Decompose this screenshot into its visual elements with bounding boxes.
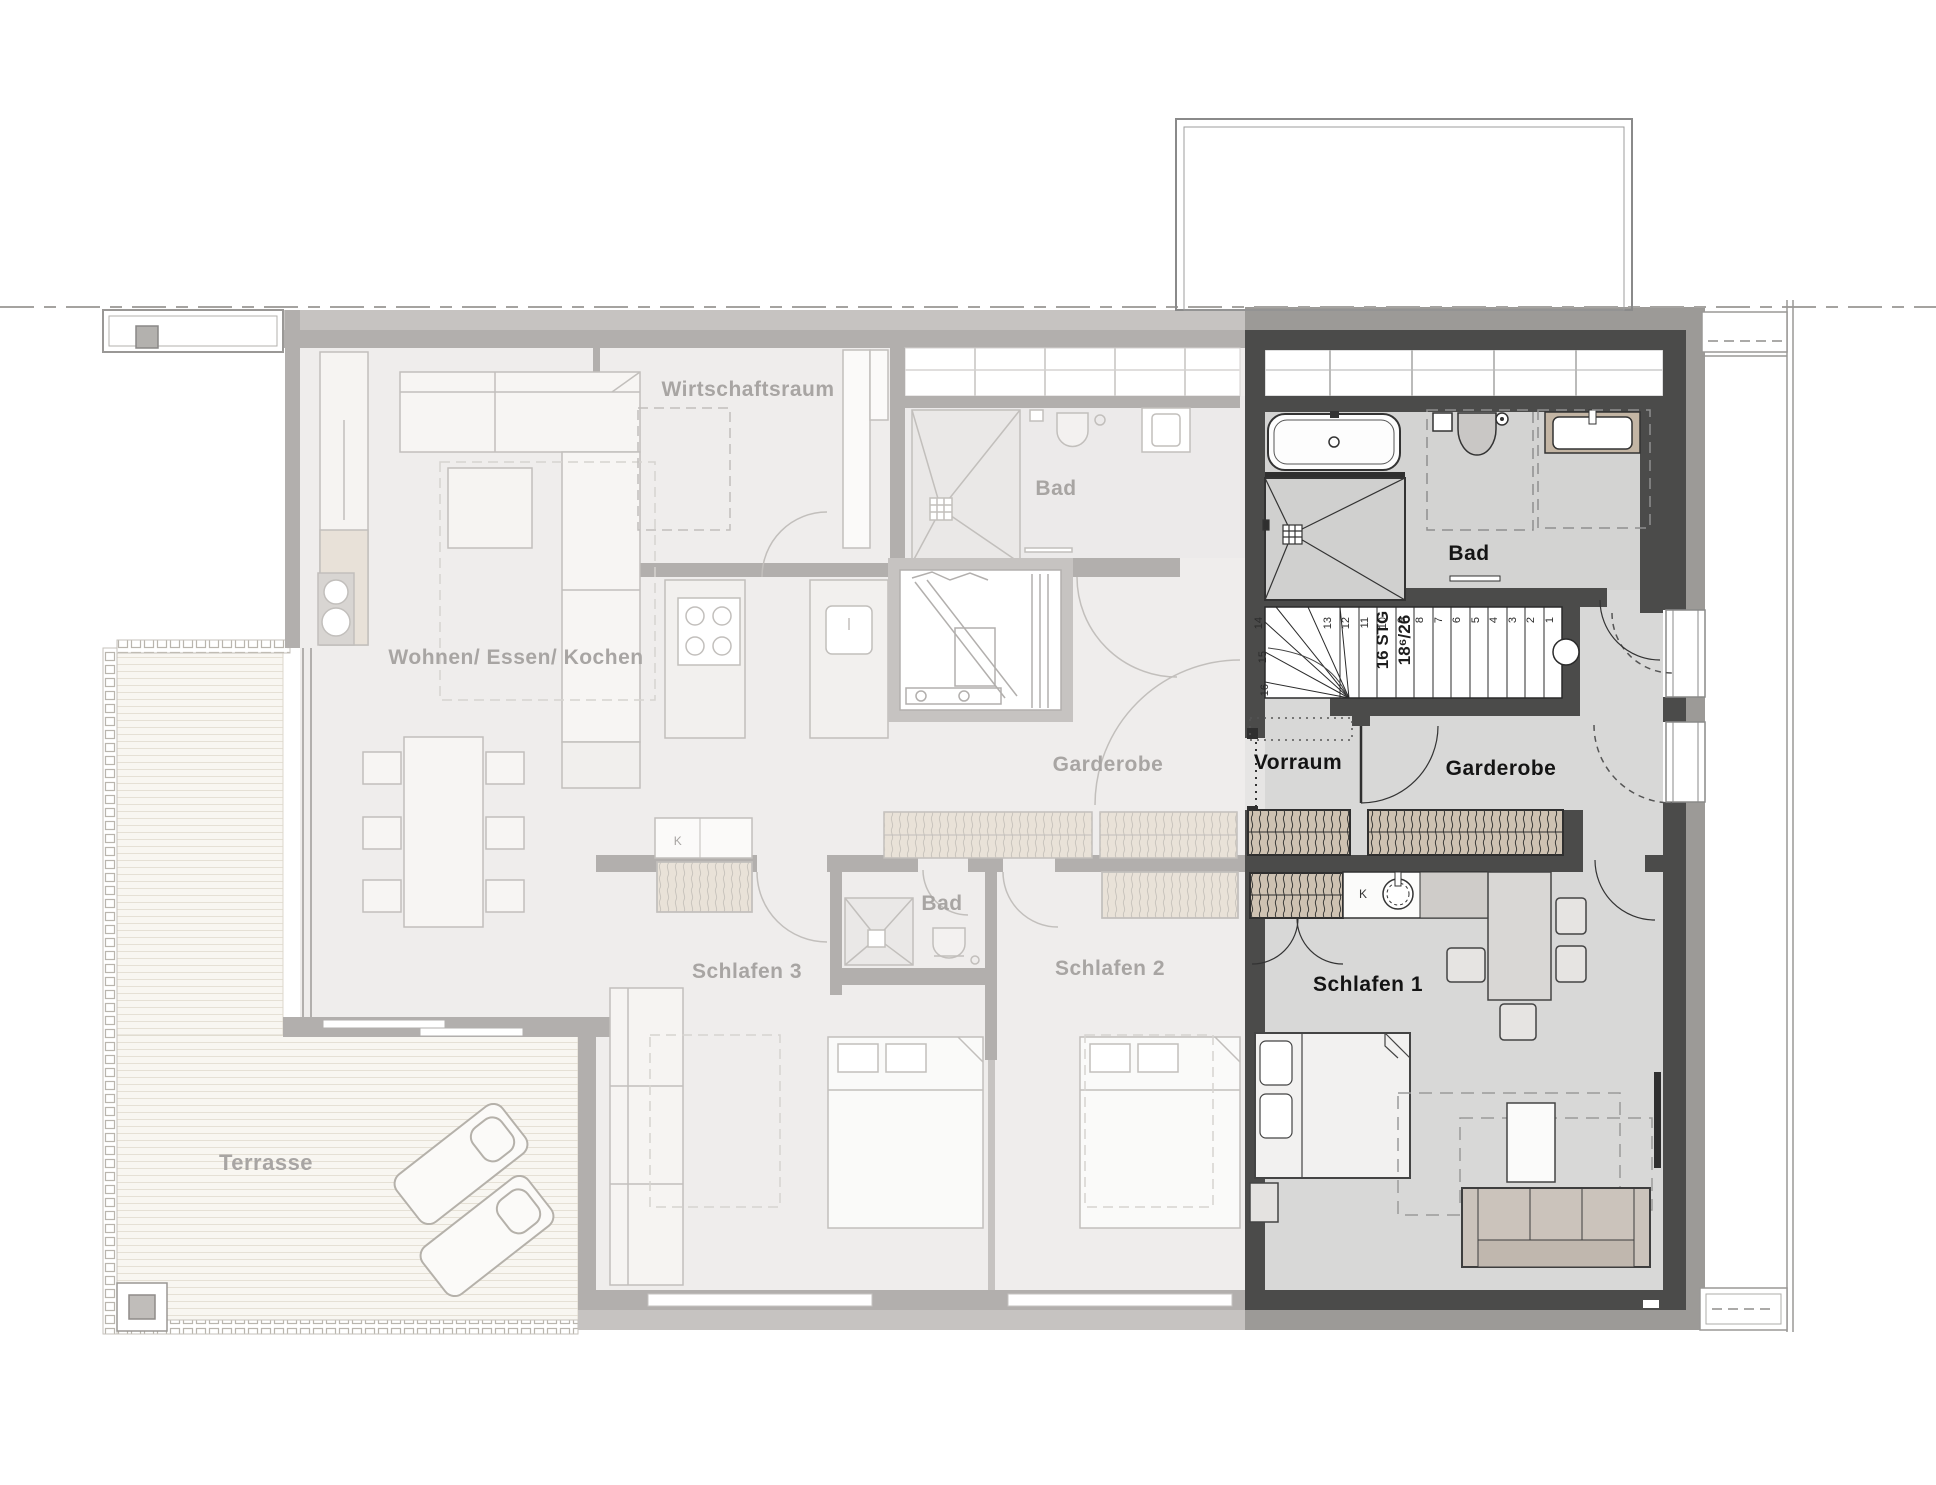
terrace-column bbox=[117, 1283, 167, 1331]
terrace-deck-lower bbox=[117, 1035, 578, 1322]
faded-outer-band-bottom bbox=[578, 1310, 1245, 1330]
window-garderobe-2 bbox=[1666, 722, 1705, 802]
step-12: 12 bbox=[1340, 617, 1352, 629]
desk-chair-1 bbox=[1556, 898, 1586, 934]
site-column bbox=[136, 326, 158, 348]
label-bad-top-faded: Bad bbox=[1035, 477, 1076, 500]
label-bad-small: Bad bbox=[921, 892, 962, 915]
nightstand bbox=[1250, 1183, 1278, 1222]
window-schlafen2 bbox=[1008, 1294, 1232, 1306]
desk bbox=[1488, 872, 1551, 1000]
coffee-table bbox=[448, 468, 532, 548]
faded-wall-left bbox=[285, 310, 300, 648]
elevator bbox=[888, 558, 1073, 722]
step-14: 14 bbox=[1253, 617, 1265, 629]
step-15: 15 bbox=[1257, 651, 1269, 663]
label-schlafen1: Schlafen 1 bbox=[1313, 973, 1423, 996]
label-bad-unit: Bad bbox=[1448, 542, 1489, 565]
floorplan-page: Terrasse bbox=[0, 0, 1936, 1485]
step-6: 6 bbox=[1451, 617, 1463, 623]
stair-column bbox=[1553, 639, 1579, 665]
dining-set bbox=[363, 737, 524, 927]
corridor-wardrobes bbox=[655, 812, 1237, 858]
terrace-deck-upper bbox=[117, 653, 283, 1035]
label-wirtschaftsraum: Wirtschaftsraum bbox=[661, 378, 834, 401]
window-garderobe-1 bbox=[1666, 610, 1705, 697]
unit-window-band bbox=[1265, 350, 1663, 396]
sliding-door-leaf-2 bbox=[420, 1028, 523, 1036]
sliding-door-leaf-1 bbox=[323, 1020, 445, 1028]
terrace-edge-left bbox=[103, 648, 117, 1334]
faded-wall-inner-bath bbox=[905, 396, 1240, 408]
step-16: 16 bbox=[1259, 684, 1271, 696]
label-k-unit: K bbox=[1359, 887, 1367, 901]
desk-chair-2 bbox=[1556, 946, 1586, 982]
step-2: 2 bbox=[1525, 617, 1537, 623]
faded-wall-top bbox=[283, 330, 1245, 348]
stair-annotation-2: 18⁶/26 bbox=[1395, 615, 1414, 665]
sofa-schlafen1 bbox=[1462, 1188, 1650, 1267]
vanity bbox=[1545, 410, 1640, 453]
towel-rail bbox=[1450, 576, 1500, 581]
label-garderobe-unit: Garderobe bbox=[1446, 757, 1557, 780]
bad-shelf bbox=[1433, 413, 1452, 431]
step-3: 3 bbox=[1507, 617, 1519, 623]
stool bbox=[1500, 1004, 1536, 1040]
step-7: 7 bbox=[1433, 617, 1445, 623]
unit-band-bottom bbox=[1245, 1310, 1705, 1330]
step-8: 8 bbox=[1414, 617, 1426, 623]
label-k-faded: K bbox=[674, 834, 683, 848]
label-wohnen: Wohnen/ Essen/ Kochen bbox=[388, 646, 643, 669]
step-4: 4 bbox=[1488, 617, 1500, 623]
step-11: 11 bbox=[1359, 617, 1371, 628]
label-vorraum: Vorraum bbox=[1254, 751, 1342, 774]
wall-badsmall-bottom bbox=[842, 968, 997, 985]
side-table bbox=[1507, 1103, 1555, 1182]
desk-chair-3 bbox=[1447, 948, 1485, 982]
ledge-top-left bbox=[103, 310, 283, 352]
faded-window-band bbox=[905, 348, 1240, 396]
bathtub bbox=[1268, 414, 1400, 470]
roof-outline-box bbox=[1176, 119, 1632, 310]
highlighted-unit: 1 2 3 4 5 6 7 8 9 10 11 12 13 14 15 16 1… bbox=[1245, 307, 1705, 1330]
ledge-bottom-right bbox=[1700, 1288, 1787, 1330]
floorplan-svg: Terrasse bbox=[0, 0, 1936, 1485]
garderobe-wardrobes bbox=[1248, 810, 1563, 855]
label-schlafen2: Schlafen 2 bbox=[1055, 957, 1165, 980]
wall-badsmall-left bbox=[830, 872, 842, 995]
terrace-edge-bottom bbox=[117, 1320, 578, 1334]
label-terrasse: Terrasse bbox=[219, 1150, 313, 1175]
window-schlafen3 bbox=[648, 1294, 872, 1306]
label-schlafen3: Schlafen 3 bbox=[692, 960, 802, 983]
faded-outer-band-top bbox=[283, 310, 1245, 330]
label-garderobe-faded: Garderobe bbox=[1053, 753, 1164, 776]
bottom-wall-notch bbox=[1643, 1300, 1659, 1308]
kitchen-counter bbox=[318, 352, 368, 645]
bed-schlafen1 bbox=[1255, 1033, 1410, 1178]
step-5: 5 bbox=[1470, 617, 1482, 623]
shower bbox=[1263, 478, 1405, 600]
wall-badsmall-right bbox=[985, 872, 997, 1060]
stair-annotation-1: 16 STG bbox=[1373, 611, 1392, 670]
wall-wirtschaftsraum-right bbox=[890, 348, 905, 577]
step-13: 13 bbox=[1322, 617, 1334, 629]
terrace-edge-top bbox=[117, 640, 290, 653]
wall-s2-s3 bbox=[988, 1060, 995, 1290]
ledge-top-right bbox=[1702, 312, 1787, 356]
entry-frame-top bbox=[1247, 728, 1258, 739]
unit-band-right bbox=[1686, 330, 1705, 1330]
wall-wing-left bbox=[578, 1037, 596, 1290]
radiator bbox=[1654, 1072, 1661, 1168]
step-1: 1 bbox=[1544, 617, 1556, 623]
